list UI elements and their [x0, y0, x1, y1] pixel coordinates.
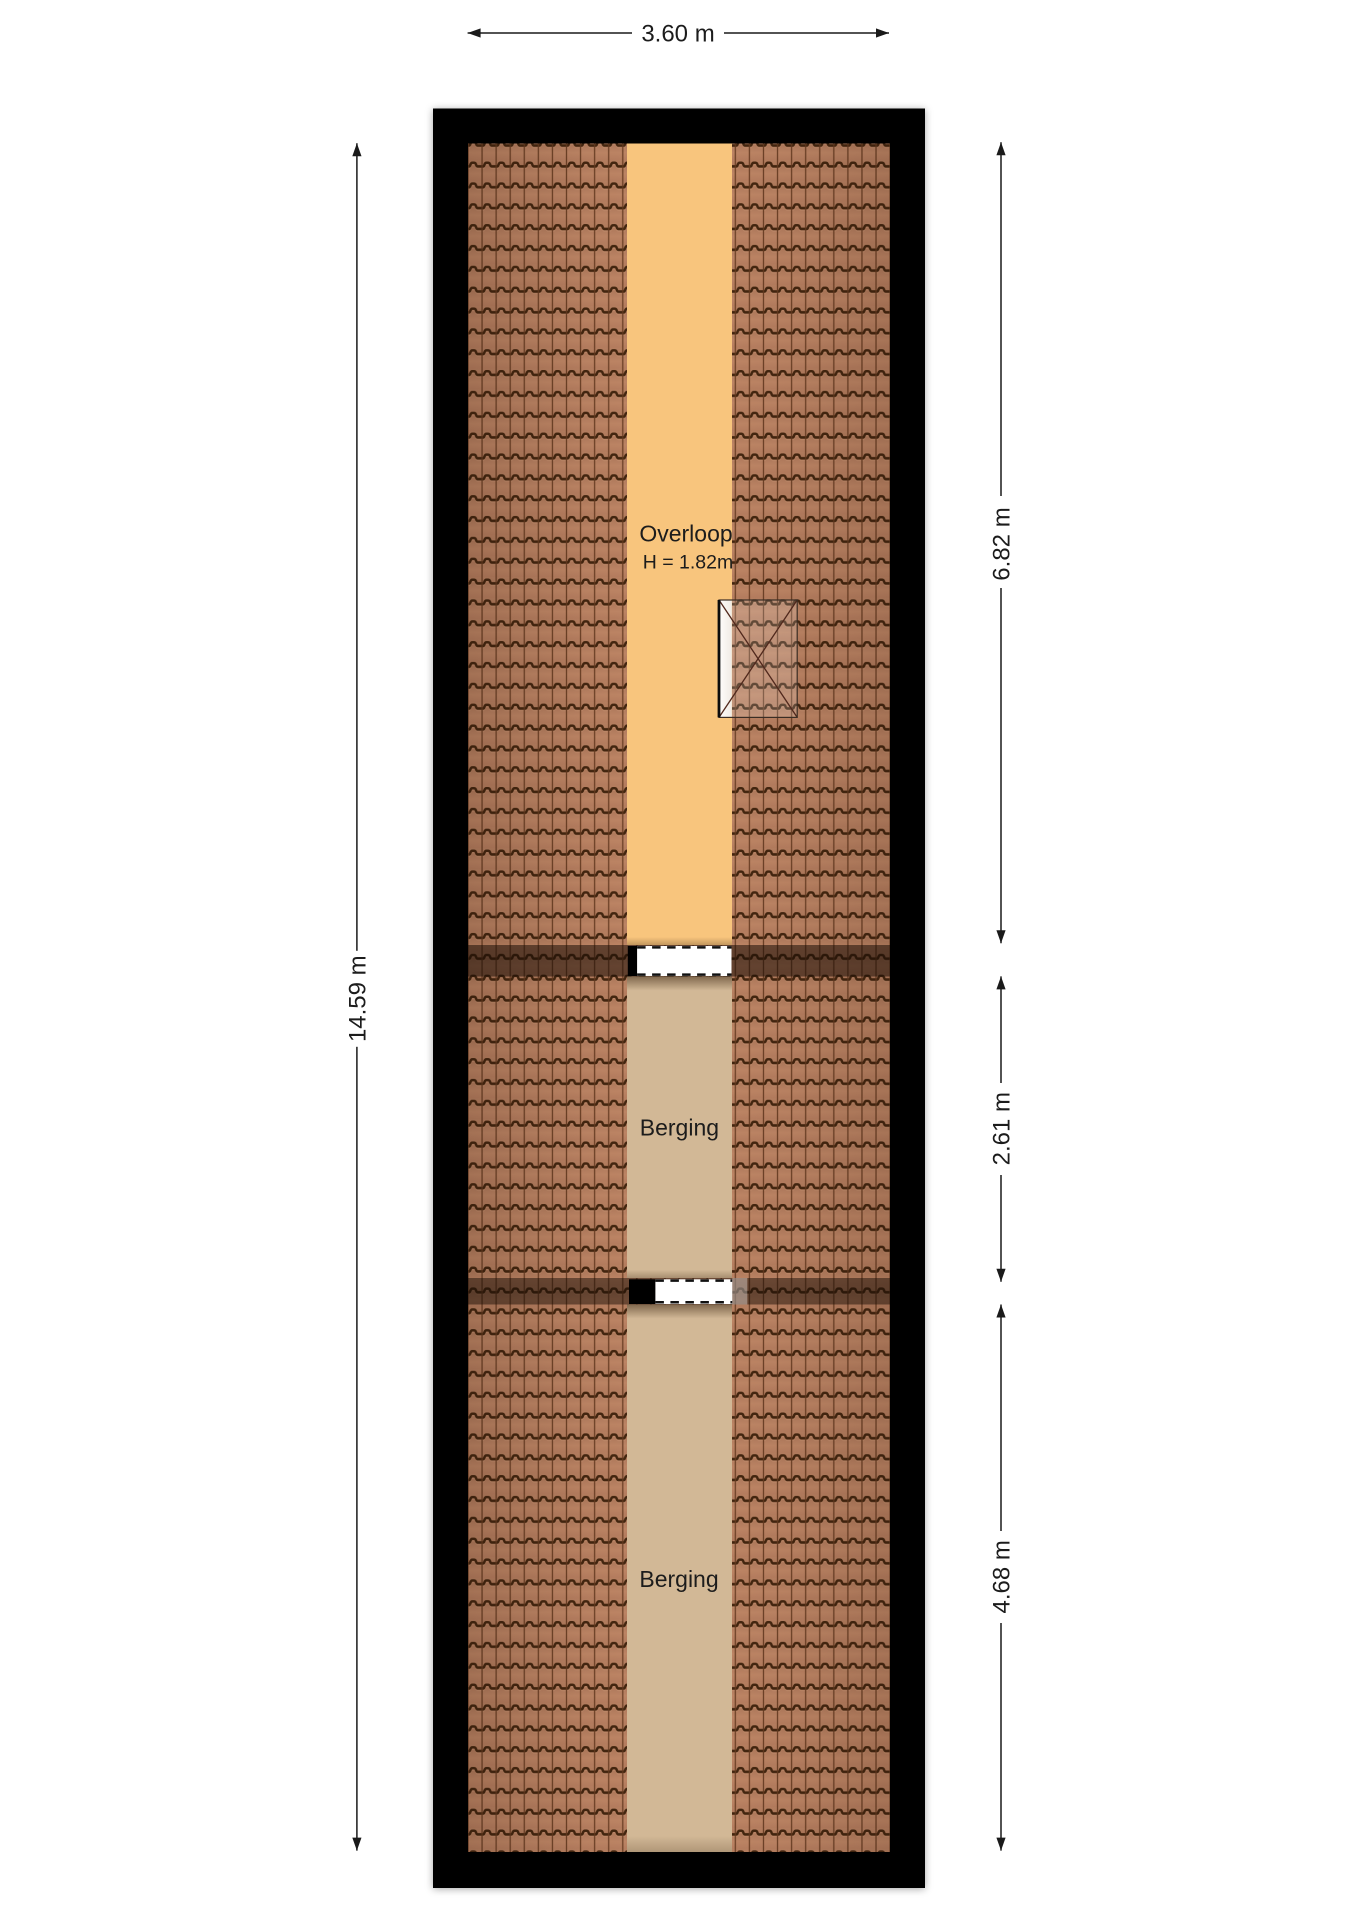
svg-text:3.60 m: 3.60 m: [641, 20, 714, 47]
svg-text:6.82 m: 6.82 m: [988, 507, 1015, 580]
svg-text:H = 1.82m: H = 1.82m: [643, 552, 734, 574]
svg-text:4.68 m: 4.68 m: [988, 1540, 1015, 1613]
svg-text:14.59 m: 14.59 m: [344, 955, 371, 1042]
svg-text:2.61 m: 2.61 m: [988, 1092, 1015, 1165]
svg-text:Overloop: Overloop: [639, 521, 732, 547]
svg-text:Berging: Berging: [640, 1115, 719, 1141]
svg-text:Berging: Berging: [639, 1566, 718, 1592]
